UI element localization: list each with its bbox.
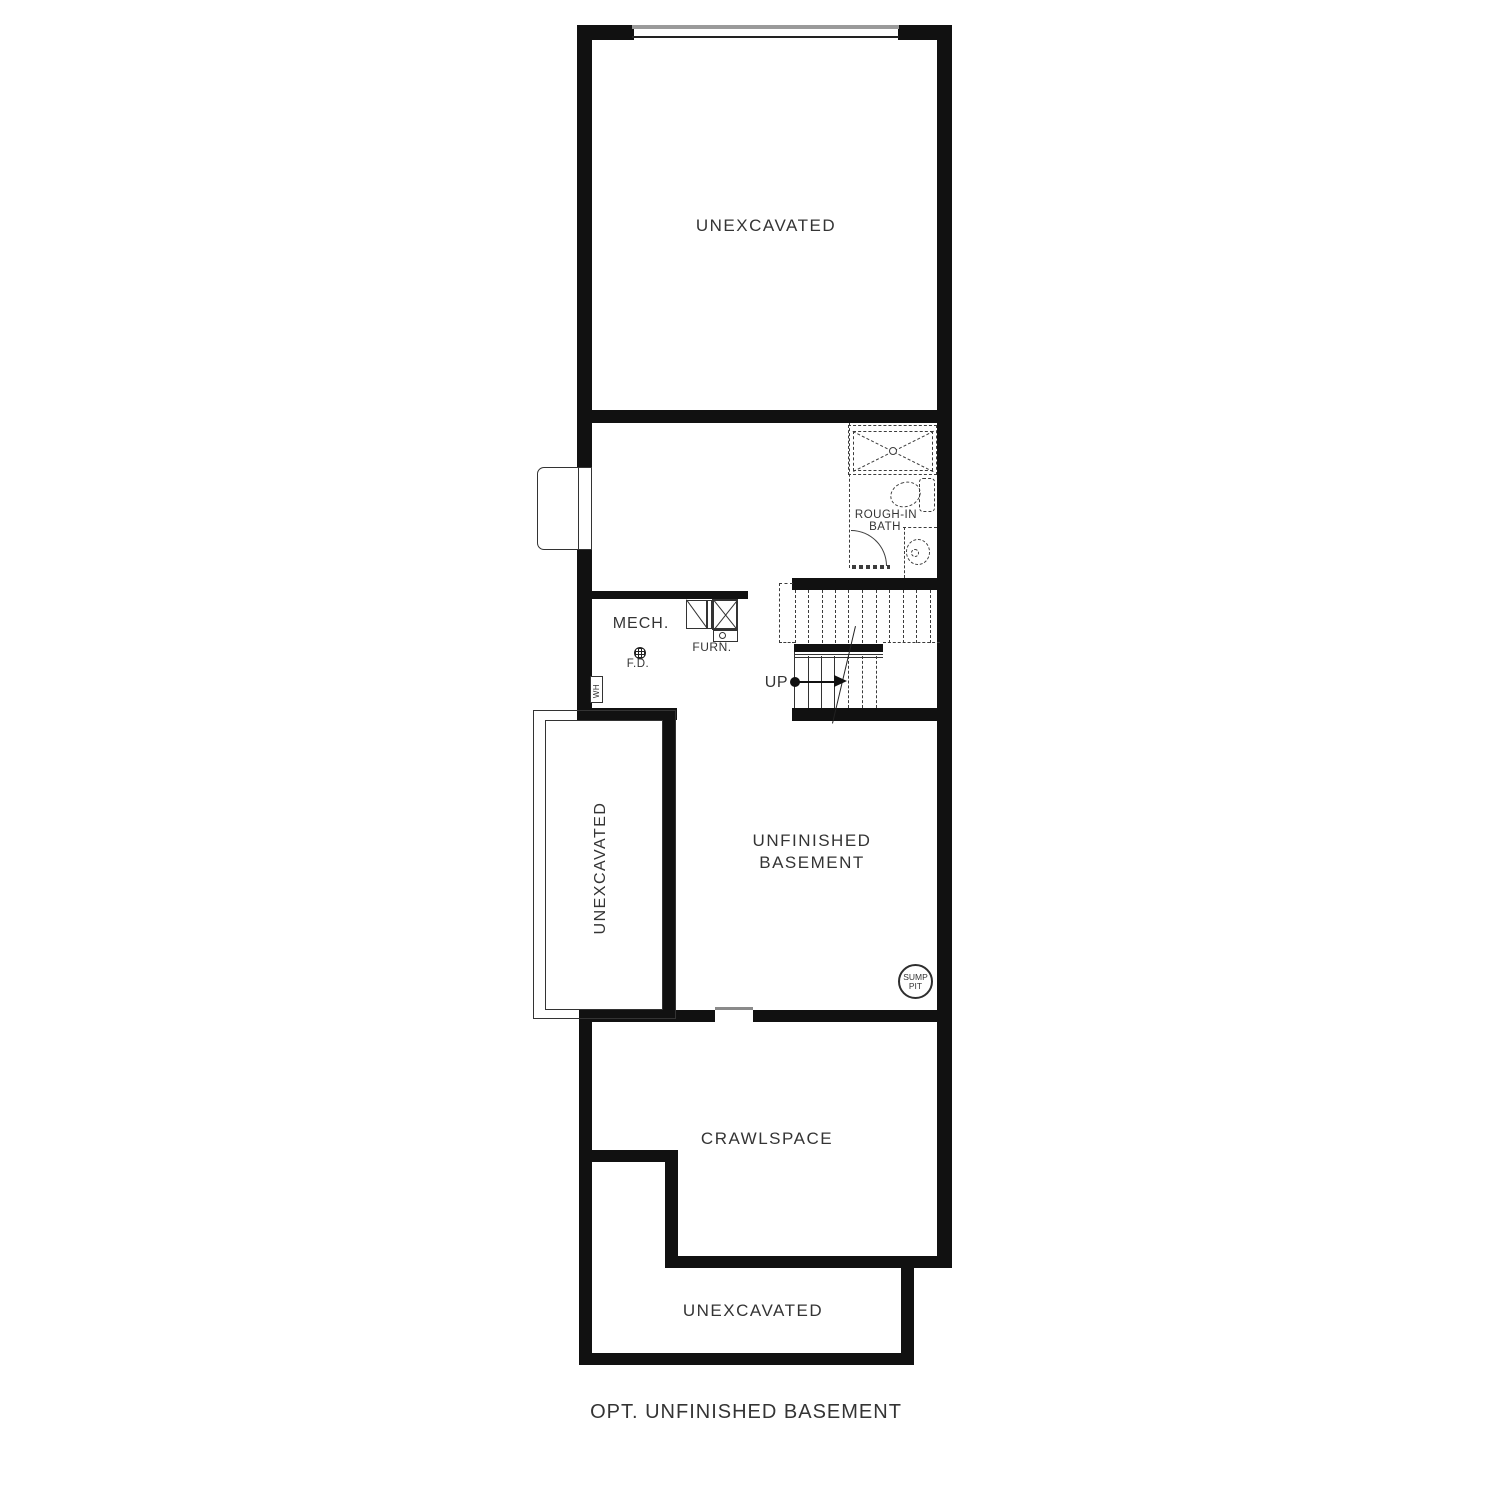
water-heater-box: WH: [590, 676, 603, 703]
stair-tread-upper: [916, 590, 917, 643]
floor-drain-label: F.D.: [614, 657, 662, 671]
stairs-dashed-left: [779, 583, 780, 643]
stairs-dashed-top: [779, 583, 793, 584]
stair-tread-upper: [889, 590, 890, 643]
wall-unexcavated-divider: [577, 410, 952, 423]
sump-pit-label-line2: PIT: [900, 982, 931, 991]
toilet-inner-outline: [911, 549, 919, 557]
stair-tread-lower-dashed: [876, 656, 877, 708]
up-label: UP: [748, 673, 788, 693]
room-label-unexcavated-bottom: UNEXCAVATED: [628, 1300, 878, 1321]
wall-left-upper: [577, 25, 592, 467]
wall-mech-top: [592, 591, 748, 599]
wall-notch-vertical: [665, 1150, 678, 1268]
room-label-unexcavated-left: UNEXCAVATED: [591, 718, 611, 1018]
up-arrow-line: [794, 681, 836, 683]
tub-drain-icon: [889, 447, 897, 455]
vanity-outline: [919, 478, 935, 512]
stair-tread-upper: [876, 590, 877, 643]
room-label-unfinished-basement-line2: BASEMENT: [687, 852, 937, 874]
room-label-crawlspace: CRAWLSPACE: [642, 1128, 892, 1149]
stair-tread-upper: [930, 590, 931, 643]
room-label-unfinished-basement: UNFINISHED BASEMENT: [687, 830, 937, 874]
wall-basement-bottom-right: [753, 1010, 952, 1022]
landing-edge-line-1: [794, 654, 883, 655]
stairs-dashed-bottom-left: [779, 642, 795, 643]
bath-door-swing-arc: [851, 530, 887, 566]
plan-caption: OPT. UNFINISHED BASEMENT: [546, 1400, 946, 1425]
wall-bottom: [579, 1353, 914, 1365]
rough-in-bath-label-line2: BATH: [845, 520, 925, 534]
stair-tread-upper: [822, 590, 823, 643]
wall-right-main: [937, 25, 952, 1268]
wall-stairs-bottom: [792, 708, 941, 721]
toilet-nook-line-v: [904, 527, 905, 578]
stairs-dashed-bottom-right: [883, 642, 940, 643]
wall-stairs-top: [792, 578, 941, 590]
sump-pit-icon: SUMP PIT: [898, 964, 933, 999]
stair-tread-upper: [835, 590, 836, 643]
wall-lowroom-right: [901, 1256, 914, 1365]
mech-label: MECH.: [593, 614, 689, 634]
stair-tread-upper: [903, 590, 904, 643]
wall-left-lower: [579, 1010, 592, 1365]
stair-tread-lower-dashed: [848, 656, 849, 708]
window-well-wall-line: [578, 468, 579, 549]
stair-tread-upper: [862, 590, 863, 643]
floor-plan: WH SUMP PIT UNEXCAVATED UNEXCAVATED UNFI…: [0, 0, 1500, 1500]
wall-stairs-landing: [794, 644, 883, 652]
room-label-unfinished-basement-line1: UNFINISHED: [687, 830, 937, 852]
top-opening-inner-line: [632, 36, 899, 38]
window-well: [537, 467, 592, 550]
furnace-base-knob-icon: [719, 632, 726, 639]
crawl-access-line: [715, 1007, 753, 1010]
room-label-unexcavated-top: UNEXCAVATED: [616, 215, 916, 236]
top-opening-outer-line: [632, 25, 899, 29]
stair-tread-lower-dashed: [862, 656, 863, 708]
furnace-label: FURN.: [687, 640, 737, 655]
stair-tread-upper: [795, 590, 796, 643]
water-heater-label: WH: [592, 677, 602, 705]
stair-tread-upper: [848, 590, 849, 643]
up-arrow-head-icon: [834, 675, 847, 687]
stair-tread-upper: [808, 590, 809, 643]
